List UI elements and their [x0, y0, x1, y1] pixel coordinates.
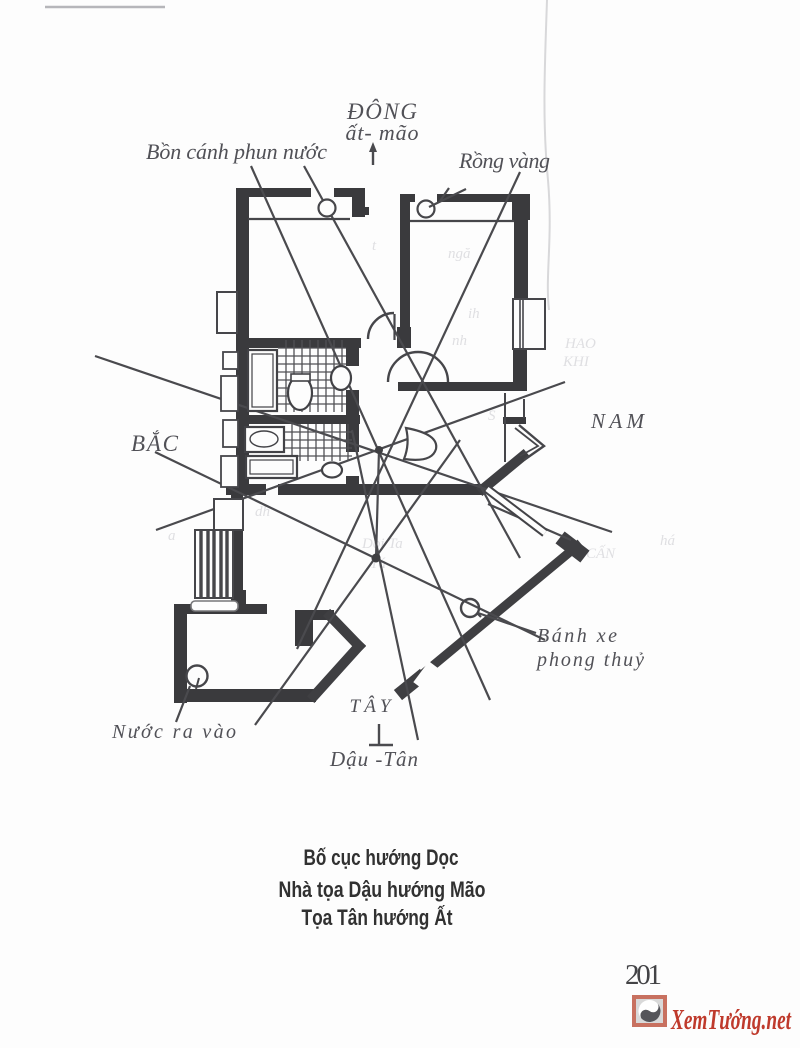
svg-text:HAO: HAO — [564, 336, 596, 352]
svg-text:Nước ra vào: Nước ra vào — [111, 721, 236, 743]
svg-text:Bố cục hướng Dọc: Bố cục hướng Dọc — [304, 845, 459, 870]
svg-text:Dậu -Tân: Dậu -Tân — [329, 747, 418, 771]
svg-text:a: a — [168, 528, 176, 544]
svg-text:nh: nh — [452, 333, 467, 349]
svg-text:Bồn cánh phun nước: Bồn cánh phun nước — [146, 139, 327, 164]
svg-text:ngă: ngă — [448, 246, 471, 262]
svg-text:t: t — [372, 238, 377, 254]
svg-text:BẮC: BẮC — [131, 430, 179, 456]
svg-text:Rồng vàng: Rồng vàng — [458, 148, 550, 173]
svg-text:Nhà tọa Dậu hướng Mão: Nhà tọa Dậu hướng Mão — [279, 877, 486, 902]
svg-text:201: 201 — [625, 959, 662, 991]
svg-text:phong thuỷ: phong thuỷ — [535, 649, 644, 671]
svg-text:CẤN: CẤN — [586, 545, 616, 562]
svg-text:há: há — [660, 533, 676, 549]
svg-text:KHI: KHI — [562, 354, 590, 370]
svg-text:Bánh xe: Bánh xe — [537, 625, 617, 647]
svg-text:NAM: NAM — [590, 409, 646, 433]
svg-text:ih: ih — [468, 306, 480, 322]
svg-text:Tọa Tân hướng Ất: Tọa Tân hướng Ất — [302, 905, 454, 930]
svg-text:ất- mão: ất- mão — [346, 120, 419, 145]
svg-text:TÂY: TÂY — [350, 695, 393, 717]
svg-text:XemTướng.net: XemTướng.net — [670, 1005, 792, 1036]
